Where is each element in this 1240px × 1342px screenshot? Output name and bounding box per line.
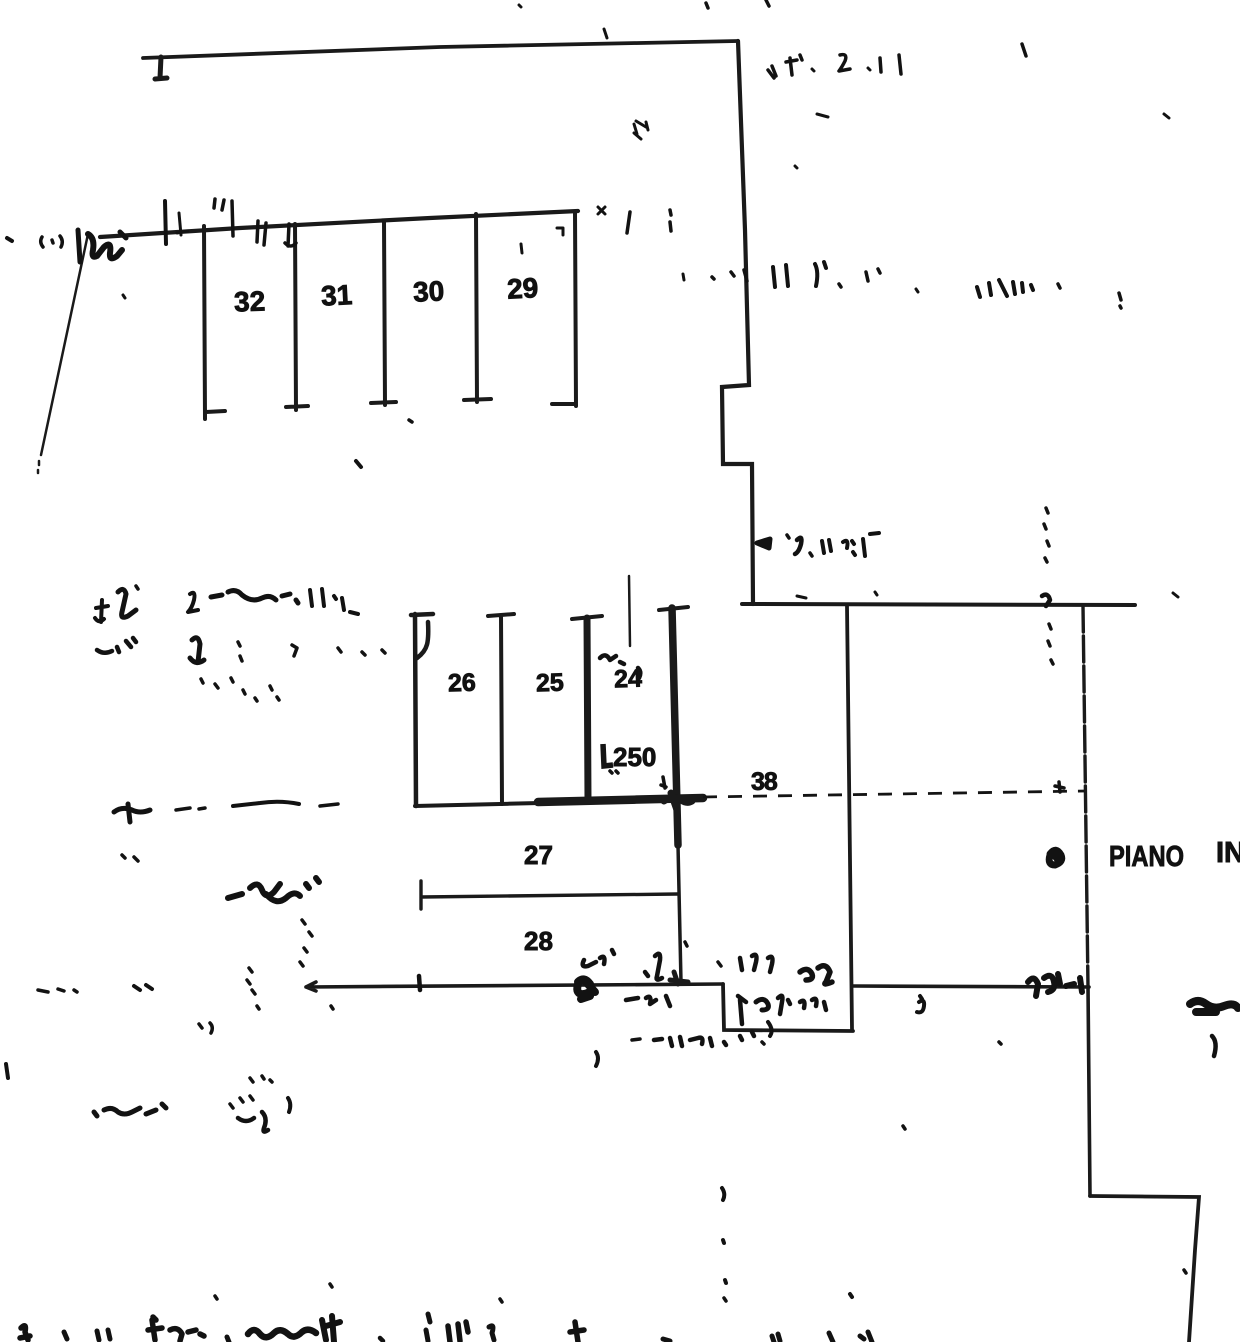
svg-text:250: 250 xyxy=(613,742,656,772)
svg-text:INT: INT xyxy=(1216,837,1240,869)
svg-text:30: 30 xyxy=(412,275,445,308)
svg-text:32: 32 xyxy=(234,285,266,317)
svg-text:38: 38 xyxy=(751,768,778,796)
svg-text:25: 25 xyxy=(536,668,565,697)
svg-text:28: 28 xyxy=(524,926,553,956)
svg-text:PIANO: PIANO xyxy=(1109,841,1184,873)
svg-text:31: 31 xyxy=(320,279,353,312)
svg-text:26: 26 xyxy=(448,668,477,697)
svg-text:27: 27 xyxy=(524,840,553,870)
svg-text:29: 29 xyxy=(506,272,539,305)
